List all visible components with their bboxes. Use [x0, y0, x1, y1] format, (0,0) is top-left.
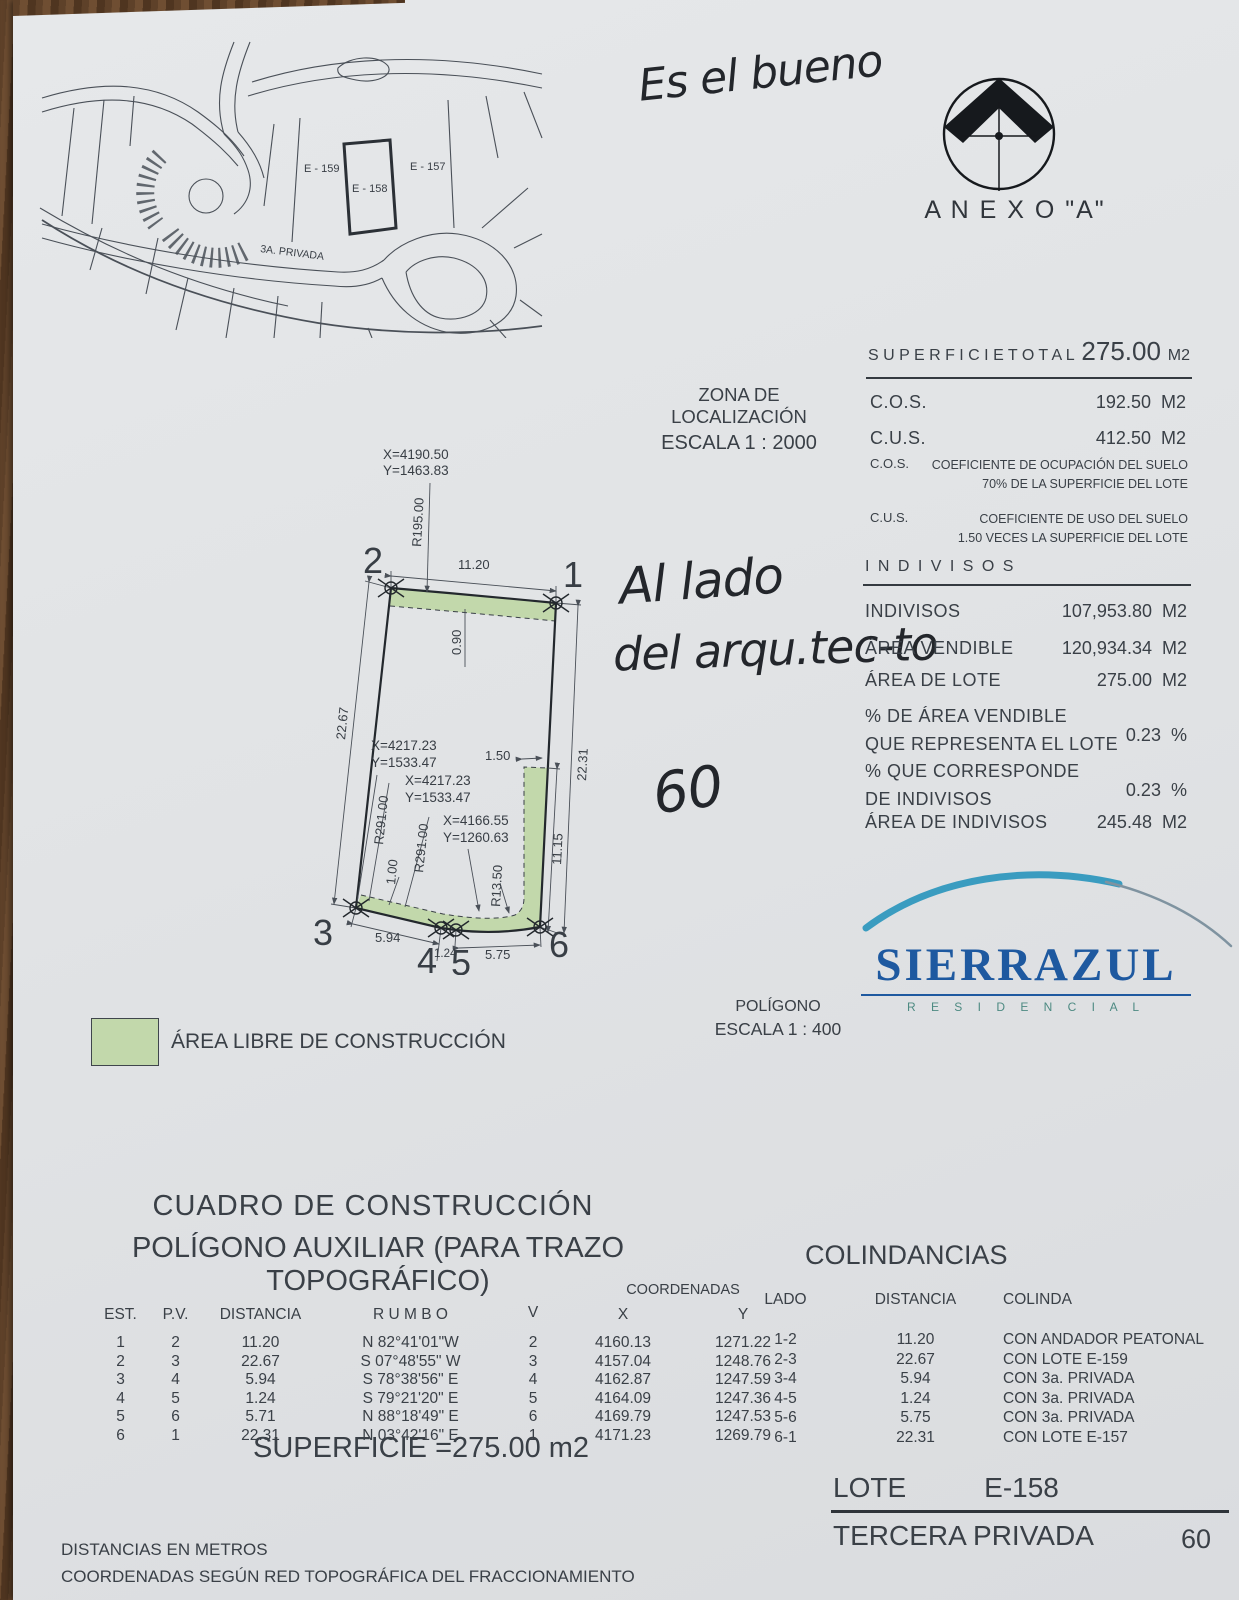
cuadro-header-x: X: [563, 1306, 683, 1324]
list-item: 4-51.24CON 3a. PRIVADA: [743, 1389, 1239, 1409]
radius-left-b: R291.00: [411, 823, 431, 873]
footer-page-number: 60: [1181, 1524, 1211, 1555]
indivisos-row-value: 107,953.80: [1062, 601, 1152, 621]
superficie-total-value: 275.00: [1081, 336, 1161, 367]
location-map: E - 159 E - 158 E - 157 3A. PRIVADA: [38, 38, 543, 338]
area-indivisos-value: 245.48: [1097, 812, 1152, 832]
cuadro-header: EST. P.V. DISTANCIA R U M B O V COORDENA…: [93, 1282, 803, 1324]
cos-note-line1: COEFICIENTE DE OCUPACIÓN DEL SUELO: [932, 456, 1188, 475]
dim-offset-top: 0.90: [449, 630, 464, 655]
vertex-2-label: 2: [363, 540, 383, 581]
pct-indivisos-label1: % QUE CORRESPONDE: [865, 758, 1080, 786]
annex-logo-icon: [928, 70, 1070, 200]
colindancias-header-colinda: COLINDA: [1003, 1290, 1239, 1310]
dim-strip: 1.50: [485, 748, 510, 763]
handwritten-number-note: 60: [649, 753, 727, 827]
table-row: 2322.67S 07°48'55" W34157.041248.76: [93, 1353, 803, 1372]
cuadro-header-est: EST.: [93, 1306, 148, 1324]
table-row: 565.71N 88°18'49" E64169.791247.53: [93, 1408, 803, 1427]
cuadro-header-rumbo: R U M B O: [318, 1306, 503, 1324]
table-row: 345.94S 78°38'56" E44162.871247.59: [93, 1371, 803, 1390]
footer-lote-value: E-158: [984, 1472, 1059, 1504]
cus-note-line2: 1.50 VECES LA SUPERFICIE DEL LOTE: [958, 529, 1188, 548]
area-lote-unit: M2: [1162, 670, 1187, 690]
coord-low-y: Y=1260.63: [443, 830, 509, 845]
colindancias-title: COLINDANCIAS: [805, 1240, 1008, 1271]
vertex-1-label: 1: [563, 554, 583, 595]
colindancias-header-lado: LADO: [743, 1290, 828, 1310]
indivisos-row-unit: M2: [1162, 601, 1187, 621]
area-indivisos-unit: M2: [1162, 812, 1187, 832]
cuadro-header-distancia: DISTANCIA: [203, 1306, 318, 1324]
dim-right: 22.31: [574, 748, 591, 781]
colindancias-header-distancia: DISTANCIA: [828, 1290, 1003, 1310]
dim-bottom-3: 5.75: [485, 947, 510, 962]
list-item: 2-322.67CON LOTE E-159: [743, 1350, 1239, 1370]
note-coordenadas: COORDENADAS SEGÚN RED TOPOGRÁFICA DEL FR…: [61, 1567, 635, 1587]
location-scale: ESCALA 1 : 2000: [633, 432, 845, 455]
location-title: ZONA DE LOCALIZACIÓN: [633, 384, 845, 428]
colindancias-header: LADO DISTANCIA COLINDA: [743, 1290, 1239, 1310]
map-lot-e158-label: E - 158: [352, 183, 387, 195]
cos-value: 192.50: [1096, 392, 1151, 412]
map-lot-e157-label: E - 157: [410, 161, 445, 173]
annex-label: A N E X O "A": [875, 196, 1155, 225]
cos-note-label: C.O.S.: [870, 456, 909, 495]
table-row: 451.24S 79°21'20" E54164.091247.36: [93, 1390, 803, 1409]
pct-vendible-unit: %: [1171, 725, 1187, 745]
map-lot-e159-label: E - 159: [304, 163, 339, 175]
coord-mid2-x: X=4217.23: [405, 773, 471, 788]
summary-divider: [866, 377, 1192, 379]
area-vendible-value: 120,934.34: [1062, 638, 1152, 658]
dim-offset-left: 1.00: [383, 859, 401, 886]
poligono-scale: ESCALA 1 : 400: [703, 1019, 853, 1040]
indivisos-title: I N D I V I S O S: [865, 558, 1015, 576]
table-row: 1211.20N 82°41'01"W24160.131271.22: [93, 1334, 803, 1353]
note-distancias: DISTANCIAS EN METROS: [61, 1540, 268, 1560]
pct-vendible-label2: QUE REPRESENTA EL LOTE: [865, 731, 1118, 759]
dim-bottom-1: 5.94: [375, 930, 400, 945]
cus-label: C.U.S.: [870, 428, 926, 449]
cuadro-table: 1211.20N 82°41'01"W24160.131271.22 2322.…: [93, 1334, 803, 1446]
brand-name: SIERRAZUL: [861, 938, 1191, 996]
superficie-total-unit: M2: [1168, 347, 1190, 365]
indivisos-row-label: INDIVISOS: [865, 601, 961, 622]
superficie-total-label: S U P E R F I C I E T O T A L: [868, 347, 1075, 365]
cos-unit: M2: [1161, 392, 1186, 412]
pct-vendible-value: 0.23: [1126, 725, 1161, 745]
list-item: 6-122.31CON LOTE E-157: [743, 1428, 1239, 1448]
pct-indivisos-value: 0.23: [1126, 780, 1161, 800]
legend-green-swatch: [91, 1018, 159, 1066]
list-item: 1-211.20CON ANDADOR PEATONAL: [743, 1330, 1239, 1350]
cos-label: C.O.S.: [870, 392, 927, 413]
dim-top: 11.20: [458, 557, 490, 572]
dim-left: 22.67: [333, 706, 351, 740]
lot-polygon-drawing: X=4190.50 Y=1463.83 X=4217.23 Y=1533.47 …: [293, 445, 633, 975]
brand-tagline: R E S I D E N C I A L: [861, 1000, 1191, 1014]
list-item: 3-45.94CON 3a. PRIVADA: [743, 1369, 1239, 1389]
legend-label: ÁREA LIBRE DE CONSTRUCCIÓN: [171, 1030, 506, 1054]
scanned-sheet: E - 159 E - 158 E - 157 3A. PRIVADA Es e…: [13, 0, 1239, 1600]
coord-low-x: X=4166.55: [443, 813, 509, 828]
coord-mid1-x: X=4217.23: [371, 738, 437, 753]
cus-value: 412.50: [1096, 428, 1151, 448]
area-lote-label: ÁREA DE LOTE: [865, 670, 1001, 691]
dim-right-inner: 11.15: [549, 833, 566, 865]
vertex-3-label: 3: [313, 912, 333, 953]
handwritten-top-note: Es el bueno: [636, 35, 885, 111]
list-item: 5-65.75CON 3a. PRIVADA: [743, 1408, 1239, 1428]
handwritten-side-note-line1: Al lado: [617, 546, 785, 615]
poligono-title: POLÍGONO: [703, 998, 853, 1016]
area-lote-value: 275.00: [1097, 670, 1152, 690]
vertex-5-label: 5: [451, 942, 471, 975]
colindancias-table: 1-211.20CON ANDADOR PEATONAL 2-322.67CON…: [743, 1330, 1239, 1447]
radius-corner: R13.50: [488, 865, 505, 908]
footer-divider: [831, 1510, 1229, 1513]
cos-note-line2: 70% DE LA SUPERFICIE DEL LOTE: [932, 475, 1188, 494]
area-vendible-unit: M2: [1162, 638, 1187, 658]
area-indivisos-label: ÁREA DE INDIVISOS: [865, 812, 1048, 833]
cus-note-label: C.U.S.: [870, 510, 908, 549]
map-street-label: 3A. PRIVADA: [260, 243, 325, 263]
coord-top-y: Y=1463.83: [383, 463, 449, 478]
cus-unit: M2: [1161, 428, 1186, 448]
radius-left-a: R291.00: [371, 795, 391, 845]
vertex-6-label: 6: [549, 924, 569, 965]
cuadro-superficie: SUPERFICIE =275.00 m2: [253, 1432, 589, 1465]
cuadro-header-v: V: [503, 1304, 563, 1322]
footer-lote-label: LOTE: [833, 1472, 906, 1504]
cuadro-title: CUADRO DE CONSTRUCCIÓN: [73, 1190, 673, 1223]
area-vendible-label: ÁREA VENDIBLE: [865, 638, 1014, 659]
coord-top-x: X=4190.50: [383, 447, 449, 462]
pct-vendible-label1: % DE ÁREA VENDIBLE: [865, 703, 1118, 731]
cuadro-header-pv: P.V.: [148, 1306, 203, 1324]
indivisos-divider: [863, 584, 1191, 586]
coord-mid2-y: Y=1533.47: [405, 790, 471, 805]
cus-note-line1: COEFICIENTE DE USO DEL SUELO: [958, 510, 1188, 529]
coord-mid1-y: Y=1533.47: [371, 755, 437, 770]
radius-top: R195.00: [409, 497, 427, 547]
vertex-4-label: 4: [417, 940, 437, 975]
footer-street: TERCERA PRIVADA: [833, 1520, 1094, 1552]
free-area-top: [390, 588, 556, 621]
pct-indivisos-unit: %: [1171, 780, 1187, 800]
pct-indivisos-label2: DE INDIVISOS: [865, 786, 1080, 814]
